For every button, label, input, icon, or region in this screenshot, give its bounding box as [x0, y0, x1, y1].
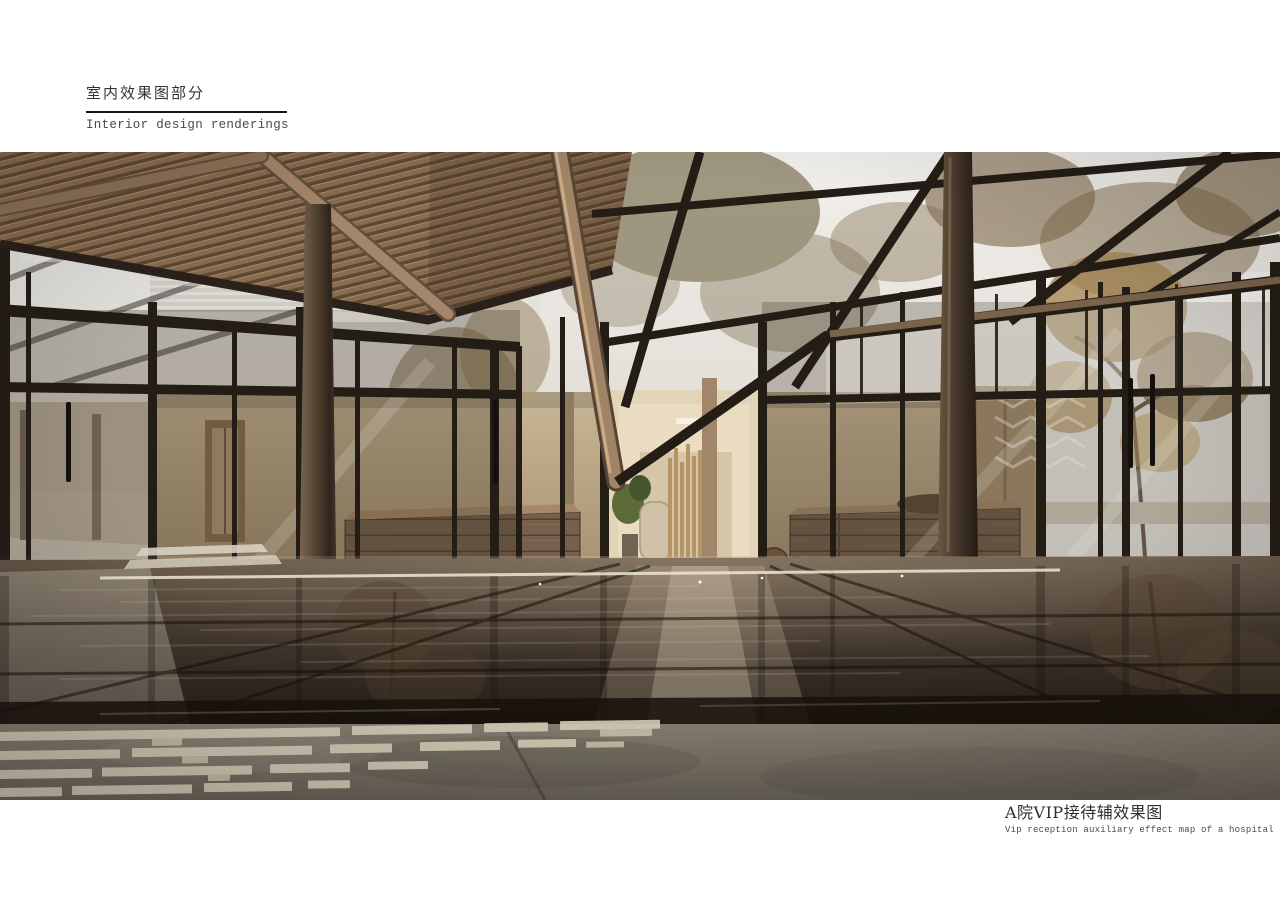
caption-title-cn: A院VIP接待辅效果图: [1005, 803, 1274, 822]
caption-block: A院VIP接待辅效果图 Vip reception auxiliary effe…: [1005, 803, 1274, 836]
interior-rendering-image: [0, 152, 1280, 800]
presentation-board: 室内效果图部分 Interior design renderings: [0, 0, 1280, 905]
header-block: 室内效果图部分 Interior design renderings: [86, 84, 289, 133]
vignette: [0, 152, 1280, 800]
caption-subtitle-en: Vip reception auxiliary effect map of a …: [1005, 825, 1274, 836]
page-title-en: Interior design renderings: [86, 118, 289, 133]
title-underline: [86, 111, 287, 113]
page-title-cn: 室内效果图部分: [86, 84, 289, 103]
